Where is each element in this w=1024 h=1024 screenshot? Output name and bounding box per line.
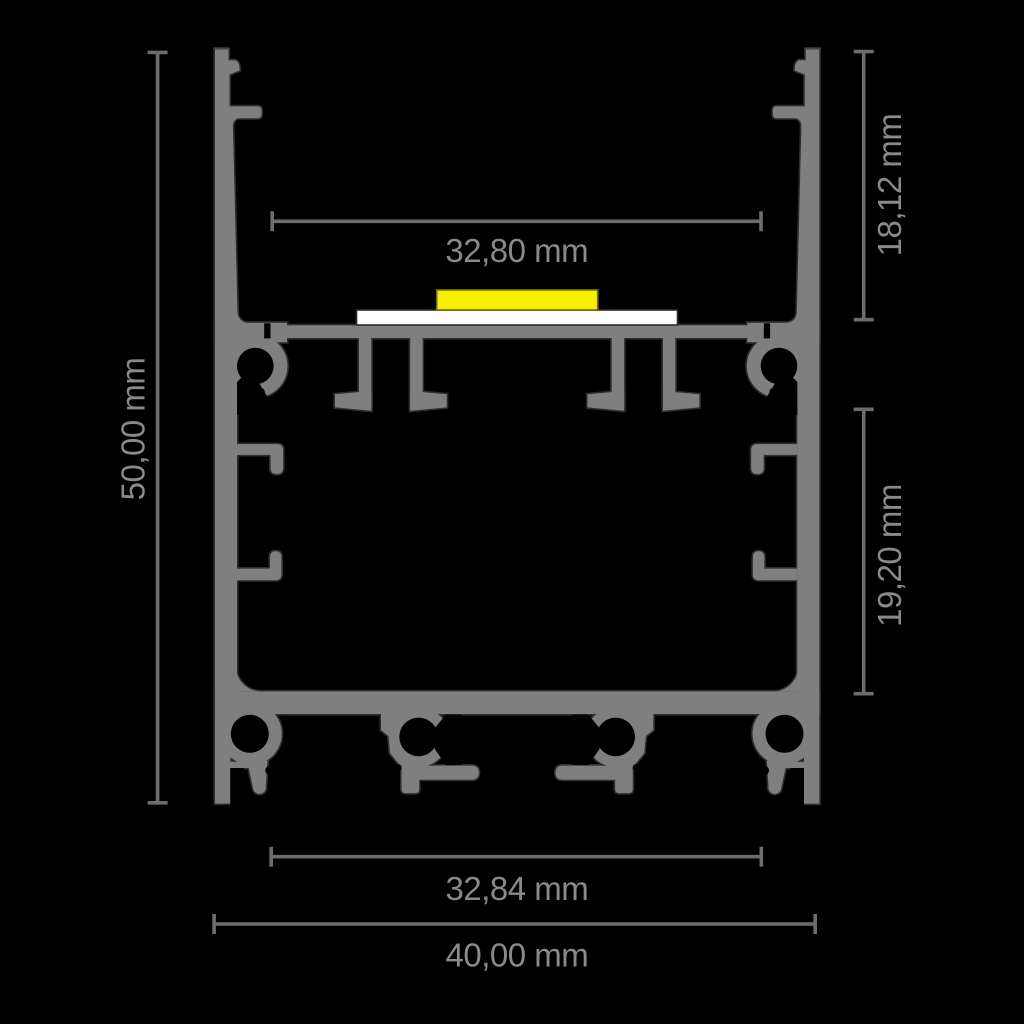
svg-text:18,12 mm: 18,12 mm [871, 114, 908, 257]
svg-text:40,00 mm: 40,00 mm [446, 937, 589, 974]
svg-text:50,00 mm: 50,00 mm [115, 358, 152, 501]
svg-text:32,80 mm: 32,80 mm [445, 232, 588, 269]
svg-text:19,20 mm: 19,20 mm [871, 484, 908, 627]
svg-text:32,84 mm: 32,84 mm [446, 870, 589, 907]
